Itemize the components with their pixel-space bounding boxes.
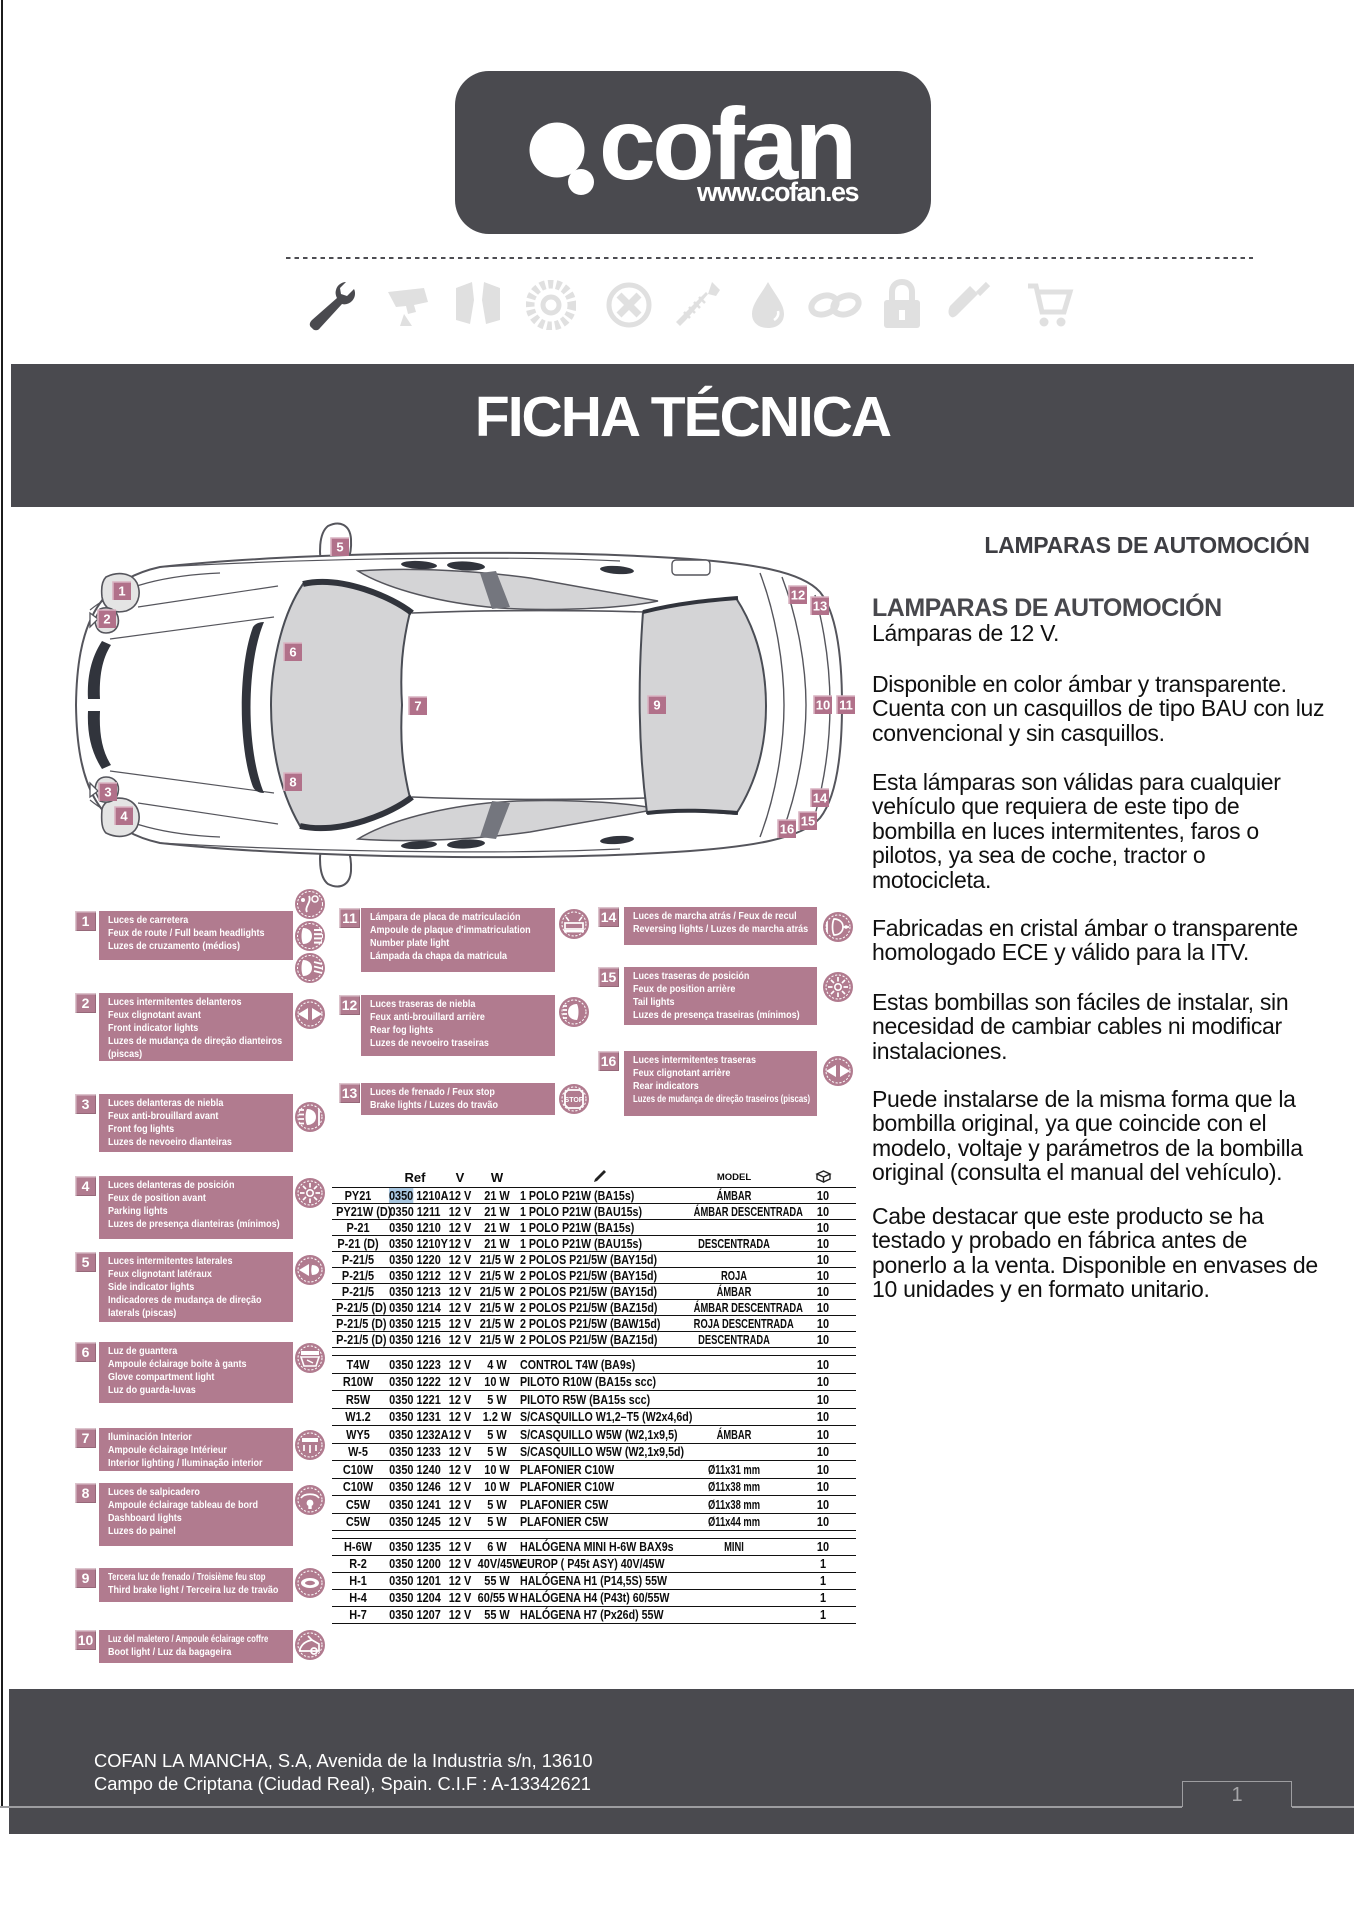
svg-text:2: 2: [103, 612, 110, 627]
svg-text:3: 3: [104, 785, 111, 800]
svg-text:7: 7: [414, 699, 421, 714]
svg-text:www.cofan.es: www.cofan.es: [696, 177, 859, 207]
svg-text:14: 14: [813, 791, 828, 806]
svg-text:10: 10: [816, 698, 830, 713]
svg-text:11: 11: [839, 698, 853, 713]
svg-text:15: 15: [801, 814, 815, 829]
svg-text:12: 12: [791, 588, 805, 603]
svg-text:8: 8: [289, 775, 296, 790]
svg-text:5: 5: [336, 540, 343, 555]
svg-text:9: 9: [653, 698, 660, 713]
svg-text:16: 16: [780, 822, 794, 837]
svg-text:STOP: STOP: [565, 1097, 584, 1104]
svg-text:6: 6: [289, 645, 296, 660]
svg-text:4: 4: [120, 809, 128, 824]
svg-text:13: 13: [813, 599, 827, 614]
svg-text:1: 1: [118, 584, 125, 599]
